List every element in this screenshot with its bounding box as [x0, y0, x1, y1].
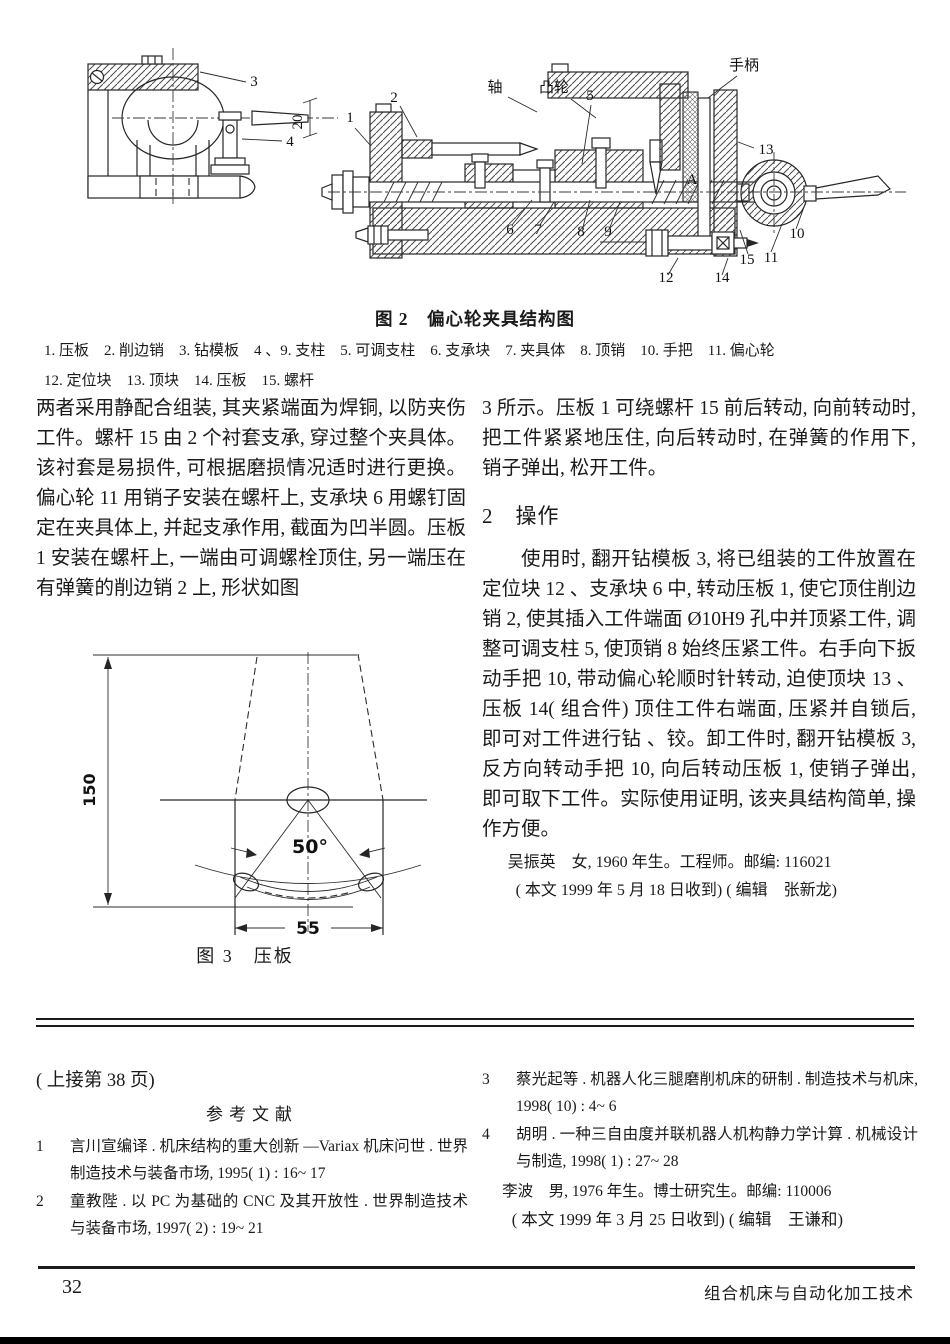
- continued-left-column: ( 上接第 38 页) 参考文献 1言川宣编译 . 机床结构的重大创新 —Var…: [36, 1066, 468, 1243]
- reference-number: 1: [36, 1133, 70, 1187]
- reference-number: 4: [482, 1121, 516, 1175]
- references-list-left: 1言川宣编译 . 机床结构的重大创新 —Variax 机床问世 . 世界制造技术…: [36, 1133, 468, 1242]
- section-title: 操作: [516, 504, 560, 528]
- author-info: 吴振英 女, 1960 年生。工程师。邮编: 116021: [482, 849, 916, 877]
- scan-edge-bar: [0, 1337, 950, 1344]
- author-bio: 李波 男, 1976 年生。博士研究生。邮编: 110006: [482, 1178, 918, 1205]
- figure2-part-label: 5: [586, 88, 594, 104]
- figure2-parts-list: 1. 压板 2. 削边销 3. 钻模板 4 、9. 支柱 5. 可调支柱 6. …: [44, 336, 910, 396]
- figure2-part-label: 手柄: [729, 57, 759, 74]
- journal-name: 组合机床与自动化加工技术: [704, 1280, 914, 1304]
- continued-from-note: ( 上接第 38 页): [36, 1066, 468, 1092]
- figure2-main-view: [322, 64, 906, 275]
- section-number: 2: [482, 504, 494, 528]
- scanned-paper-page: 320412轴凸轮5手柄13A67891011151214 图 2 偏心轮夹具结…: [0, 0, 950, 1344]
- references-list-right: 3蔡光起等 . 机器人化三腿磨削机床的研制 . 制造技术与机床, 1998( 1…: [482, 1066, 918, 1175]
- figure2-part-label: 2: [390, 90, 398, 106]
- section-divider-rule: [36, 1018, 914, 1027]
- figure2-part-label: 12: [659, 270, 674, 286]
- figure3-width-dim: 55: [296, 919, 320, 939]
- reference-item: 2童教陛 . 以 PC 为基础的 CNC 及其开放性 . 世界制造技术与装备市场…: [36, 1188, 468, 1242]
- figure2-part-label: 20: [290, 115, 306, 130]
- received-note: ( 本文 1999 年 5 月 18 日收到) ( 编辑 张新龙): [482, 877, 916, 905]
- figure2-part-label: 11: [764, 250, 778, 266]
- figure2-part-label: 3: [250, 74, 258, 90]
- figure2-part-label: 7: [534, 222, 542, 238]
- parts-list-line1: 1. 压板 2. 削边销 3. 钻模板 4 、9. 支柱 5. 可调支柱 6. …: [44, 336, 910, 366]
- reference-text: 胡明 . 一种三自由度并联机器人机构静力学计算 . 机械设计与制造, 1998(…: [516, 1121, 918, 1175]
- figure2-part-label: 1: [346, 110, 354, 126]
- page-number: 32: [62, 1276, 82, 1299]
- figure3-angle-dim: 50°: [292, 836, 328, 858]
- reference-number: 3: [482, 1066, 516, 1120]
- footer-rule: [38, 1266, 915, 1269]
- received-note-2: ( 本文 1999 年 3 月 25 日收到) ( 编辑 王谦和): [482, 1205, 918, 1234]
- figure2-drawing-svg: 320412轴凸轮5手柄13A67891011151214: [40, 42, 915, 300]
- references-title: 参考文献: [36, 1100, 468, 1125]
- left-column: 两者采用静配合组装, 其夹紧端面为焊铜, 以防夹伤工件。螺杆 15 由 2 个衬…: [36, 394, 466, 604]
- reference-text: 蔡光起等 . 机器人化三腿磨削机床的研制 . 制造技术与机床, 1998( 10…: [516, 1066, 918, 1120]
- parts-list-line2: 12. 定位块 13. 顶块 14. 压板 15. 螺杆: [44, 366, 910, 396]
- figure2-part-label: 15: [740, 252, 755, 268]
- figure2-part-label: 4: [286, 134, 294, 150]
- figure2-part-label: 8: [577, 224, 585, 240]
- figure2-part-label: 轴: [487, 79, 502, 96]
- reference-text: 童教陛 . 以 PC 为基础的 CNC 及其开放性 . 世界制造技术与装备市场,…: [70, 1188, 468, 1242]
- continued-right-column: 3蔡光起等 . 机器人化三腿磨削机床的研制 . 制造技术与机床, 1998( 1…: [482, 1066, 918, 1234]
- figure2-part-label: 9: [604, 224, 612, 240]
- reference-item: 4胡明 . 一种三自由度并联机器人机构静力学计算 . 机械设计与制造, 1998…: [482, 1121, 918, 1175]
- figure3-height-dim: 150: [80, 773, 99, 806]
- figure2-part-label: 14: [715, 270, 731, 286]
- left-paragraph: 两者采用静配合组装, 其夹紧端面为焊铜, 以防夹伤工件。螺杆 15 由 2 个衬…: [36, 394, 466, 604]
- figure3-caption: 图 3 压板: [35, 942, 455, 968]
- right-column: 3 所示。压板 1 可绕螺杆 15 前后转动, 向前转动时, 把工件紧紧地压住,…: [482, 394, 916, 905]
- section-heading: 2操作: [482, 500, 916, 530]
- figure2-caption: 图 2 偏心轮夹具结构图: [0, 306, 950, 331]
- reference-item: 3蔡光起等 . 机器人化三腿磨削机床的研制 . 制造技术与机床, 1998( 1…: [482, 1066, 918, 1120]
- figure2-part-label: 6: [506, 222, 514, 238]
- figure2-part-label: 凸轮: [539, 79, 569, 96]
- reference-text: 言川宣编译 . 机床结构的重大创新 —Variax 机床问世 . 世界制造技术与…: [70, 1133, 468, 1187]
- figure2-part-label: 10: [790, 226, 805, 242]
- reference-number: 2: [36, 1188, 70, 1242]
- reference-item: 1言川宣编译 . 机床结构的重大创新 —Variax 机床问世 . 世界制造技术…: [36, 1133, 468, 1187]
- operation-paragraph: 使用时, 翻开钻模板 3, 将已组装的工件放置在定位块 12 、支承块 6 中,…: [482, 545, 916, 845]
- figure3-drawing-svg: 150 50°: [35, 640, 465, 940]
- figure3-plate-drawing: 150 50°: [35, 640, 465, 940]
- figure2-fixture-drawing: 320412轴凸轮5手柄13A67891011151214: [40, 42, 915, 300]
- figure2-part-label: 13: [759, 142, 774, 158]
- figure2-part-label: A: [687, 172, 698, 188]
- right-paragraph: 3 所示。压板 1 可绕螺杆 15 前后转动, 向前转动时, 把工件紧紧地压住,…: [482, 394, 916, 484]
